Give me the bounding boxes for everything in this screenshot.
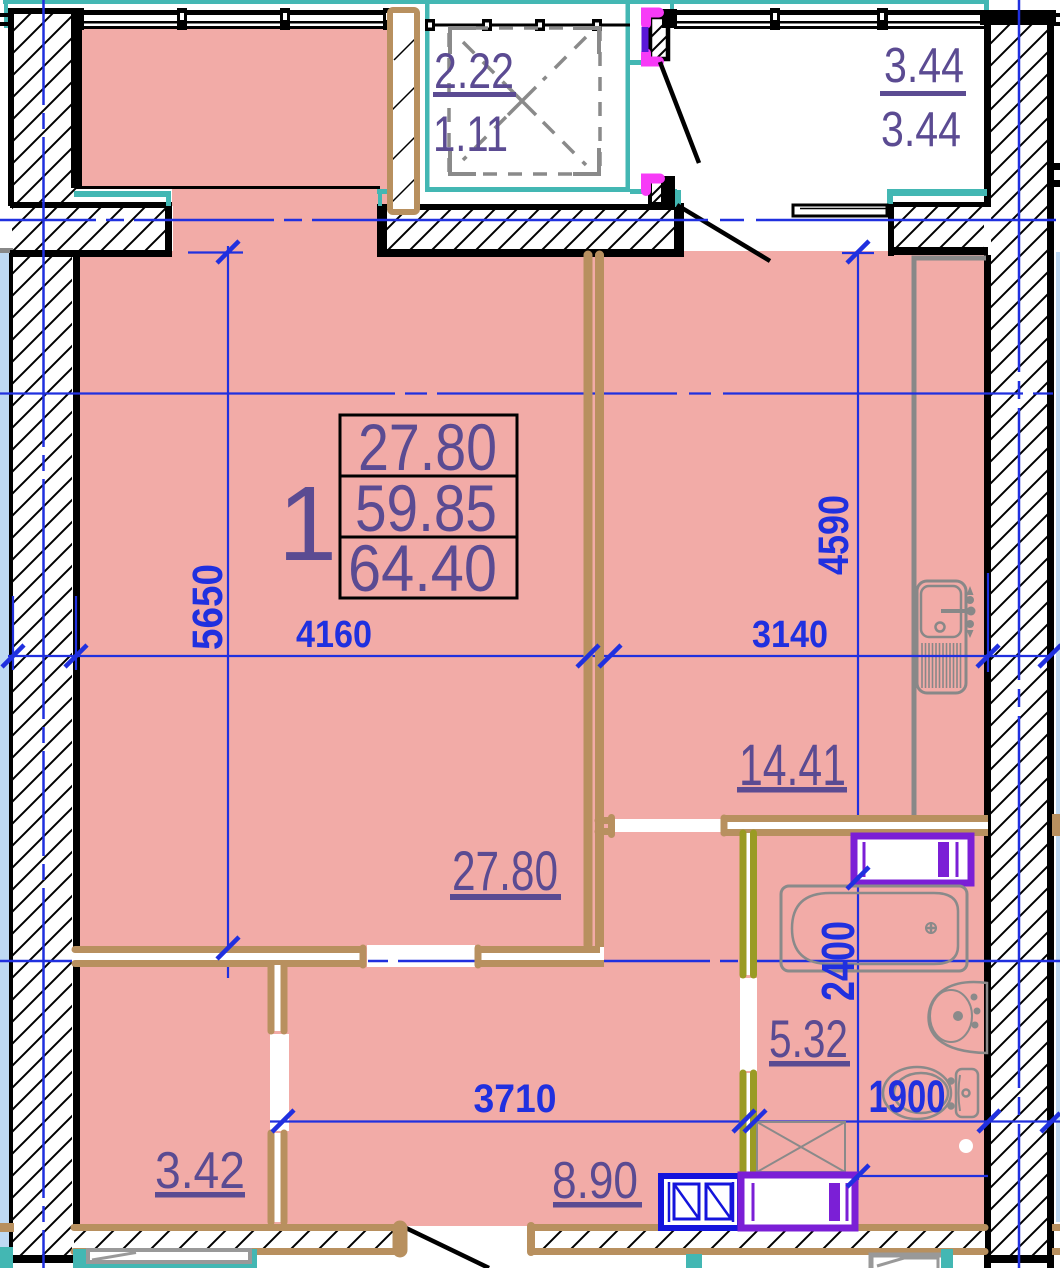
svg-text:4160: 4160 <box>296 614 372 656</box>
svg-text:2.22: 2.22 <box>434 43 514 99</box>
svg-text:3.44: 3.44 <box>884 39 964 93</box>
svg-text:4590: 4590 <box>810 495 858 575</box>
svg-text:1900: 1900 <box>869 1071 946 1122</box>
svg-text:3710: 3710 <box>474 1077 557 1121</box>
svg-text:5650: 5650 <box>184 564 232 650</box>
svg-text:1.11: 1.11 <box>433 106 508 162</box>
svg-text:3.44: 3.44 <box>881 103 961 157</box>
svg-text:2400: 2400 <box>812 921 864 1001</box>
svg-text:64.40: 64.40 <box>348 531 497 605</box>
svg-text:3.42: 3.42 <box>155 1142 245 1200</box>
svg-text:5.32: 5.32 <box>769 1010 848 1069</box>
svg-text:27.80: 27.80 <box>452 839 558 902</box>
svg-text:3140: 3140 <box>752 614 828 656</box>
svg-text:8.90: 8.90 <box>552 1152 638 1210</box>
svg-text:1: 1 <box>278 465 337 583</box>
